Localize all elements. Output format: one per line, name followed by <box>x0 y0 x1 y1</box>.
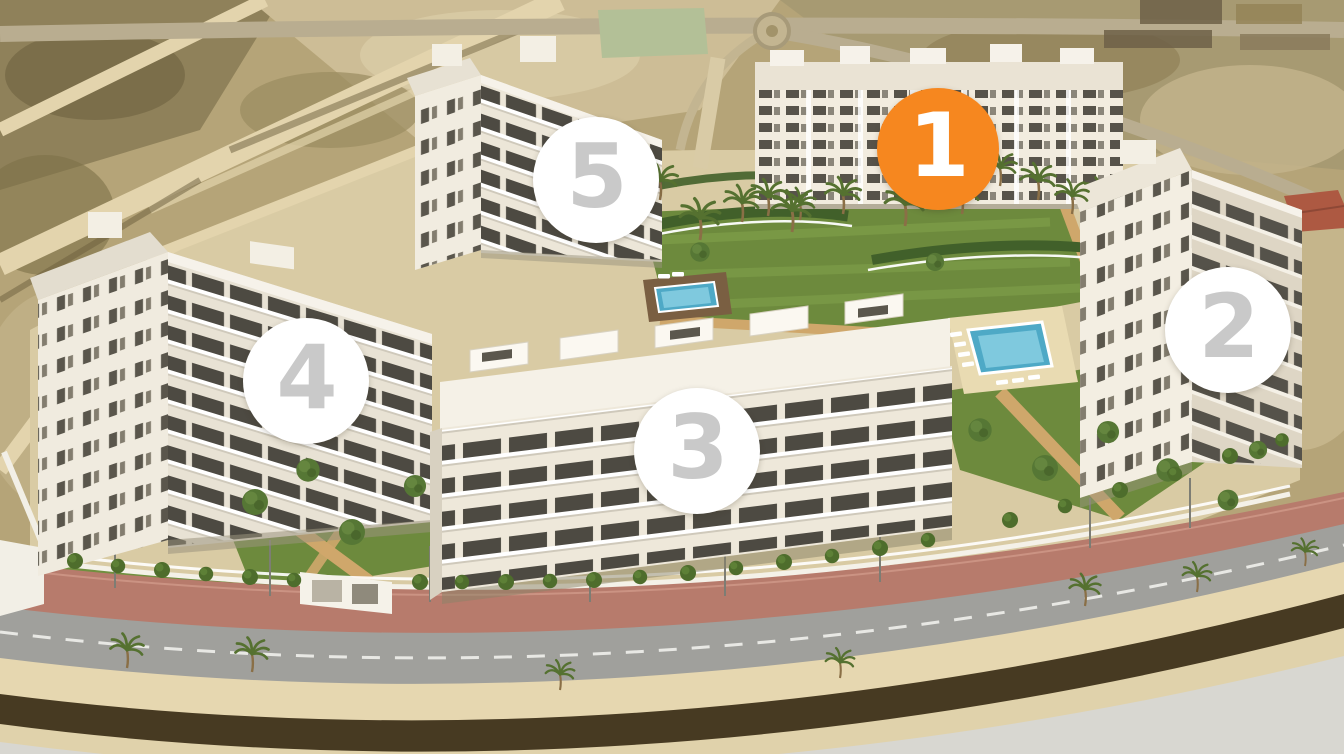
building-marker-4-number: 4 <box>276 334 335 428</box>
building-marker-2-number: 2 <box>1198 283 1257 377</box>
building-marker-5[interactable]: 5 <box>533 117 659 243</box>
small-pool <box>643 272 732 322</box>
building-marker-5-number: 5 <box>566 133 625 227</box>
building-marker-2[interactable]: 2 <box>1165 267 1291 393</box>
building-marker-1-number: 1 <box>908 102 967 196</box>
building-marker-3-number: 3 <box>667 404 726 498</box>
aerial-render-view: 1 2 3 4 5 <box>0 0 1344 754</box>
building-marker-1[interactable]: 1 <box>877 88 999 210</box>
building-marker-4[interactable]: 4 <box>243 318 369 444</box>
site-render <box>0 0 1344 754</box>
main-pool <box>948 306 1078 394</box>
building-marker-3[interactable]: 3 <box>634 388 760 514</box>
green-field <box>598 8 708 58</box>
